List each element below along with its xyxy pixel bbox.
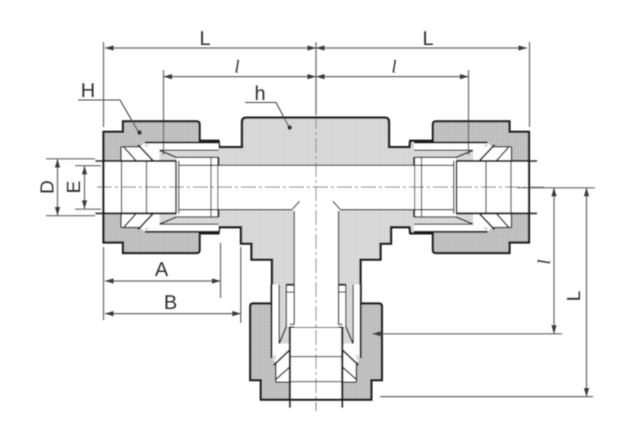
svg-text:H: H (81, 80, 95, 102)
svg-text:B: B (164, 292, 177, 314)
svg-text:A: A (155, 259, 169, 281)
svg-text:L: L (199, 28, 210, 50)
svg-text:l: l (534, 259, 554, 264)
svg-text:l: l (234, 57, 239, 77)
svg-text:E: E (64, 181, 85, 194)
svg-text:h: h (254, 83, 265, 105)
svg-text:D: D (38, 180, 59, 194)
svg-text:L: L (422, 28, 433, 50)
svg-text:l: l (391, 57, 396, 77)
svg-text:L: L (564, 291, 585, 302)
